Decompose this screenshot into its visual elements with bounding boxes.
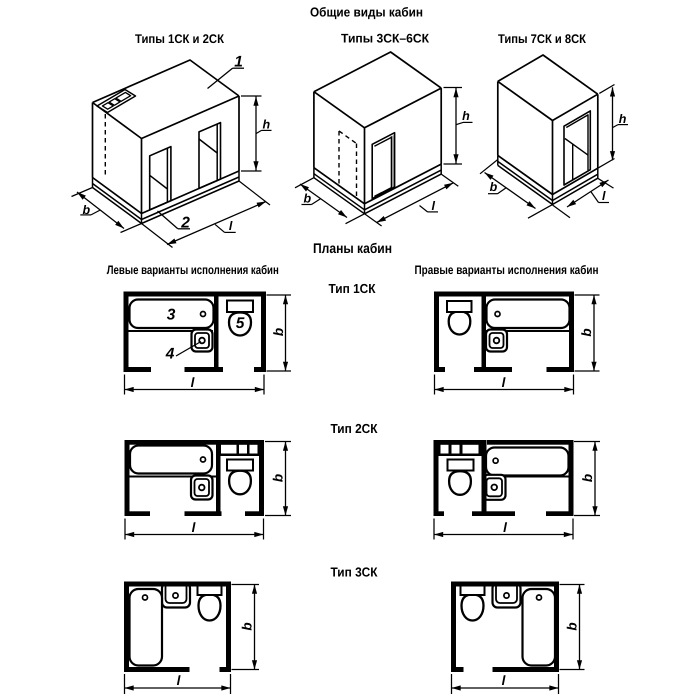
svg-text:b: b <box>271 328 286 336</box>
svg-text:Общие виды кабин: Общие виды кабин <box>310 5 423 20</box>
svg-text:b: b <box>565 622 580 630</box>
svg-text:b: b <box>579 328 594 336</box>
svg-text:h: h <box>619 112 627 126</box>
svg-text:l: l <box>502 375 506 390</box>
svg-text:b: b <box>580 474 595 482</box>
svg-text:b: b <box>303 192 311 206</box>
svg-text:b: b <box>271 474 286 482</box>
svg-text:b: b <box>240 622 255 630</box>
svg-text:5: 5 <box>236 315 245 332</box>
svg-text:4: 4 <box>165 346 175 363</box>
svg-text:l: l <box>192 520 196 535</box>
svg-text:l: l <box>503 520 507 535</box>
svg-text:l: l <box>431 199 435 213</box>
svg-text:Правые варианты исполнения каб: Правые варианты исполнения кабин <box>415 263 599 277</box>
svg-text:h: h <box>462 109 470 123</box>
svg-text:3: 3 <box>167 307 176 324</box>
svg-text:Тип 1СК: Тип 1СК <box>329 281 376 296</box>
svg-text:b: b <box>490 180 498 194</box>
svg-text:Типы 1СК и 2СК: Типы 1СК и 2СК <box>135 32 224 46</box>
svg-text:Планы кабин: Планы кабин <box>313 240 392 256</box>
svg-text:l: l <box>502 673 506 688</box>
svg-text:h: h <box>262 118 270 132</box>
svg-text:l: l <box>229 219 233 233</box>
svg-text:Тип 3СК: Тип 3СК <box>331 565 378 580</box>
svg-text:Тип 2СК: Тип 2СК <box>331 421 378 436</box>
svg-text:l: l <box>191 375 195 390</box>
svg-text:Типы 3СК–6СК: Типы 3СК–6СК <box>341 32 429 46</box>
svg-text:Левые варианты исполнения каби: Левые варианты исполнения кабин <box>107 263 279 277</box>
svg-text:Типы 7СК и 8СК: Типы 7СК и 8СК <box>498 32 586 46</box>
svg-text:l: l <box>602 189 606 203</box>
svg-text:l: l <box>177 673 181 688</box>
